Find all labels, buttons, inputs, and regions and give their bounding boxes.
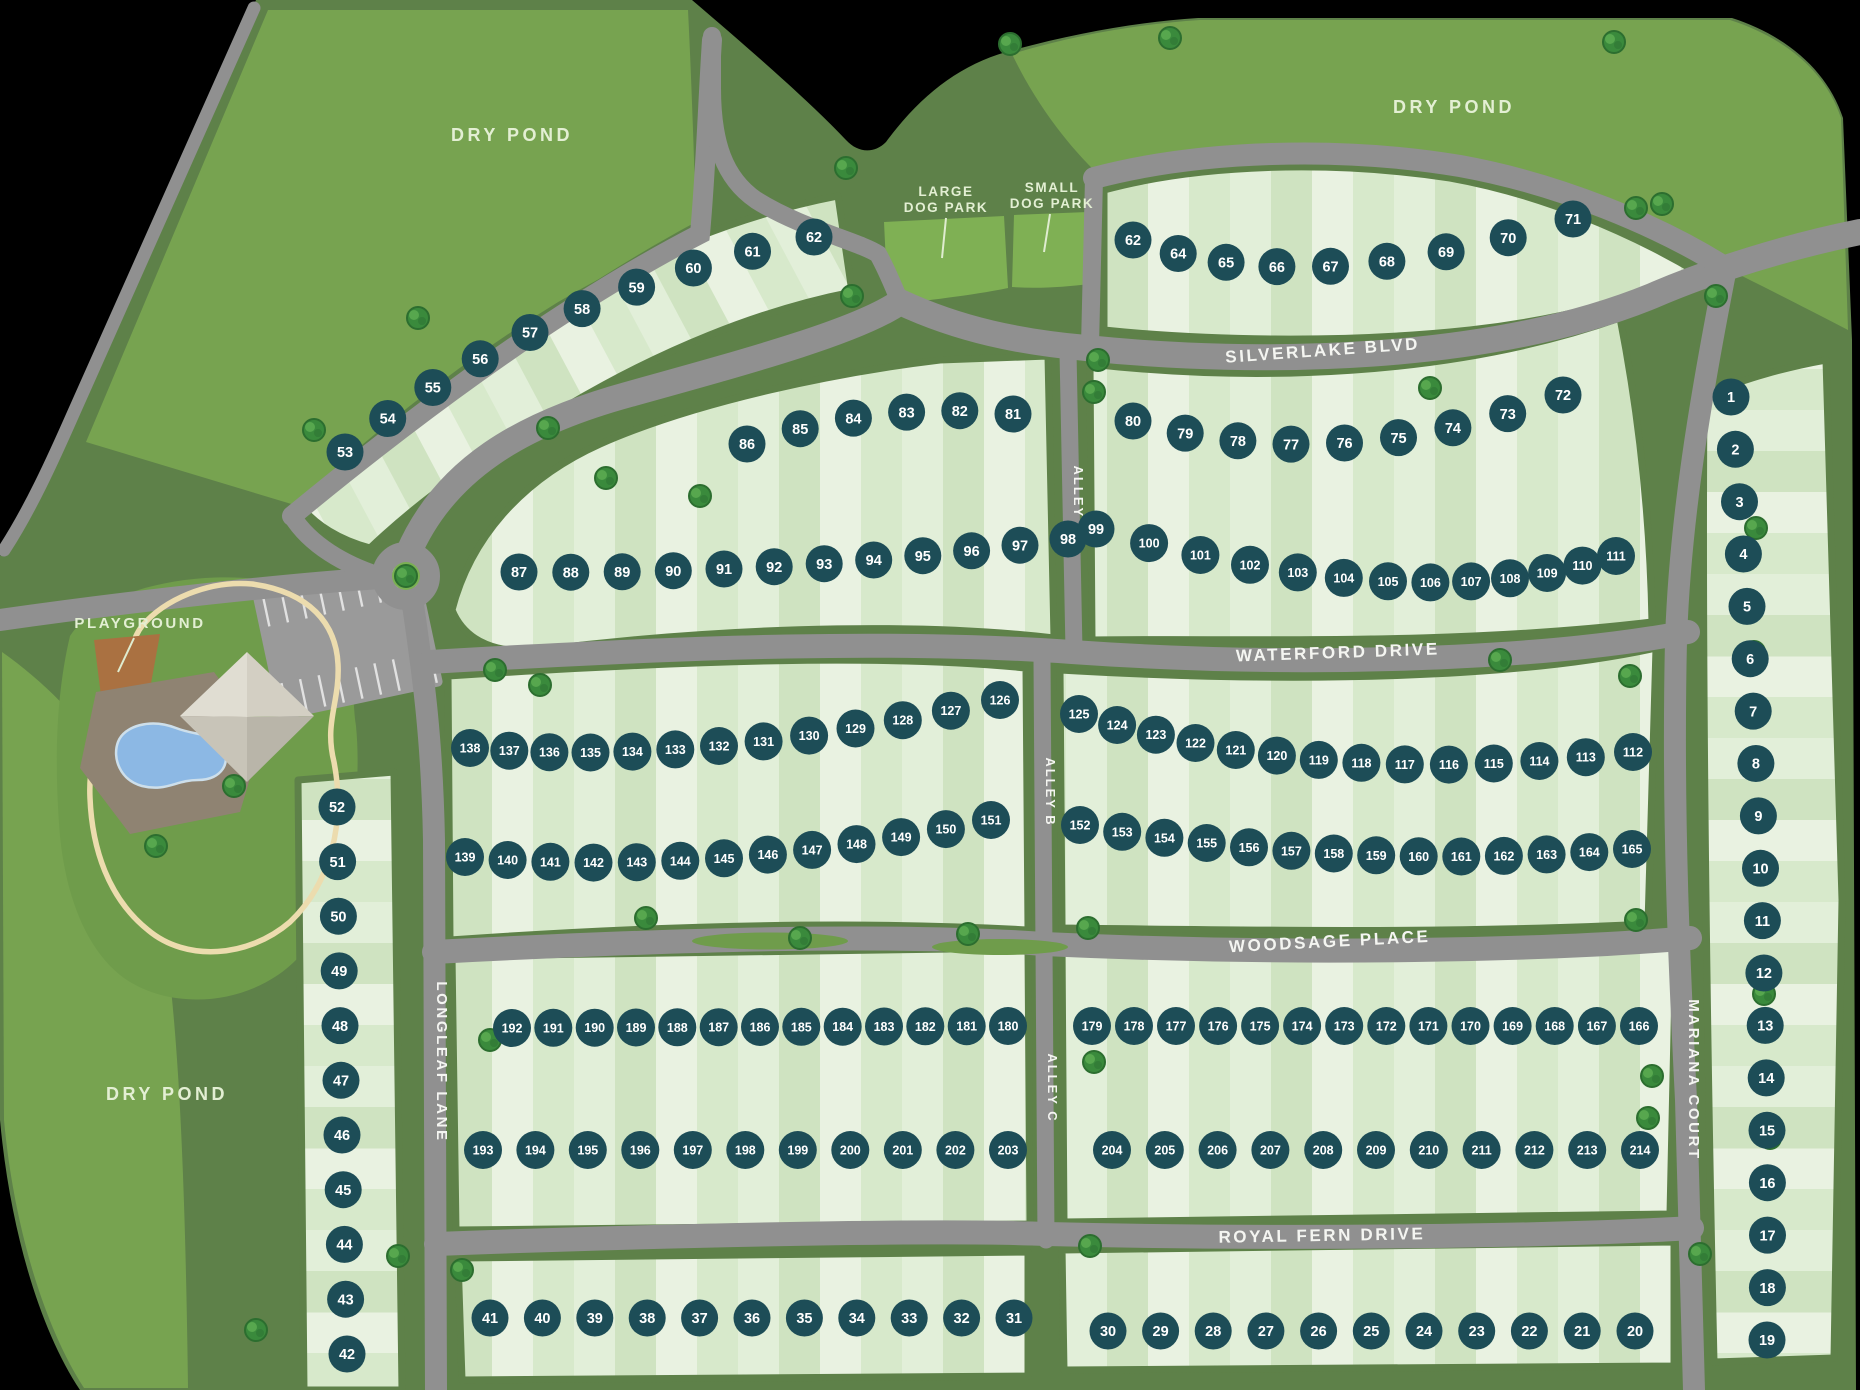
- lot-marker[interactable]: 20: [1617, 1313, 1654, 1350]
- lot-marker[interactable]: 67: [1312, 248, 1349, 285]
- lot-marker[interactable]: 111: [1597, 537, 1635, 575]
- lot-number-label: 178: [1124, 1020, 1145, 1034]
- lot-number-label: 116: [1439, 758, 1459, 772]
- lot-marker[interactable]: 11: [1744, 902, 1781, 939]
- lot-marker[interactable]: 8: [1737, 745, 1774, 782]
- lot-marker[interactable]: 114: [1520, 742, 1558, 780]
- lot-number-label: 55: [425, 381, 441, 397]
- lot-marker[interactable]: 37: [681, 1300, 718, 1337]
- lot-marker[interactable]: 39: [576, 1300, 613, 1337]
- lot-marker[interactable]: 200: [831, 1131, 869, 1169]
- lot-number-label: 167: [1586, 1020, 1607, 1034]
- lot-marker[interactable]: 88: [552, 554, 589, 591]
- lot-marker[interactable]: 151: [972, 801, 1010, 839]
- lot-marker[interactable]: 165: [1613, 830, 1651, 868]
- lot-number-label: 110: [1572, 559, 1592, 573]
- lot-number-label: 102: [1240, 558, 1261, 572]
- lot-number-label: 137: [499, 744, 520, 758]
- lot-marker[interactable]: 178: [1115, 1007, 1153, 1045]
- lot-marker[interactable]: 173: [1325, 1007, 1363, 1045]
- tree-icon: [689, 485, 711, 507]
- lot-marker[interactable]: 187: [700, 1008, 738, 1046]
- lot-marker[interactable]: 160: [1400, 837, 1438, 875]
- tree-icon: [1619, 665, 1641, 687]
- lot-marker[interactable]: 196: [621, 1131, 659, 1169]
- lot-marker[interactable]: 24: [1406, 1313, 1443, 1350]
- lot-marker[interactable]: 127: [932, 692, 970, 730]
- tree-icon: [1087, 349, 1109, 371]
- lot-marker[interactable]: 7: [1735, 693, 1772, 730]
- lot-marker[interactable]: 35: [786, 1300, 823, 1337]
- lot-marker[interactable]: 52: [319, 789, 356, 826]
- lot-number-label: 120: [1266, 749, 1287, 763]
- lot-marker[interactable]: 142: [575, 844, 613, 882]
- lot-marker[interactable]: 205: [1146, 1131, 1184, 1169]
- lot-marker[interactable]: 73: [1489, 395, 1526, 432]
- tree-icon: [245, 1319, 267, 1341]
- lot-number-label: 27: [1258, 1324, 1274, 1340]
- tree-icon: [223, 775, 245, 797]
- lot-number-label: 97: [1012, 538, 1028, 554]
- lot-marker[interactable]: 172: [1367, 1007, 1405, 1045]
- lot-marker[interactable]: 176: [1199, 1007, 1237, 1045]
- lot-marker[interactable]: 15: [1749, 1112, 1786, 1149]
- lot-marker[interactable]: 192: [493, 1009, 531, 1047]
- lot-marker[interactable]: 157: [1272, 832, 1310, 870]
- lot-marker[interactable]: 62: [1115, 222, 1152, 259]
- lot-number-label: 175: [1250, 1020, 1271, 1034]
- lot-number-label: 150: [935, 823, 956, 837]
- lot-number-label: 186: [750, 1021, 771, 1035]
- lot-marker[interactable]: 42: [329, 1336, 366, 1373]
- lot-marker[interactable]: 60: [675, 250, 712, 287]
- lot-marker[interactable]: 87: [501, 554, 538, 591]
- lot-number-label: 50: [330, 909, 346, 925]
- lot-marker[interactable]: 148: [838, 825, 876, 863]
- lot-marker[interactable]: 141: [531, 843, 569, 881]
- lot-marker[interactable]: 90: [655, 552, 692, 589]
- lot-marker[interactable]: 207: [1251, 1131, 1289, 1169]
- lot-marker[interactable]: 72: [1545, 377, 1582, 414]
- lot-marker[interactable]: 146: [749, 836, 787, 874]
- lot-marker[interactable]: 30: [1090, 1313, 1127, 1350]
- lot-marker[interactable]: 48: [322, 1007, 359, 1044]
- lot-marker[interactable]: 185: [782, 1008, 820, 1046]
- lot-number-label: 205: [1154, 1144, 1175, 1158]
- lot-marker[interactable]: 45: [325, 1171, 362, 1208]
- lot-marker[interactable]: 104: [1325, 559, 1363, 597]
- lot-marker[interactable]: 120: [1258, 737, 1296, 775]
- lot-marker[interactable]: 117: [1386, 745, 1424, 783]
- lot-number-label: 4: [1739, 547, 1747, 563]
- lot-number-label: 207: [1260, 1144, 1281, 1158]
- lot-number-label: 159: [1366, 849, 1387, 863]
- lot-number-label: 9: [1754, 809, 1762, 825]
- lot-marker[interactable]: 1: [1713, 379, 1750, 416]
- lot-marker[interactable]: 214: [1621, 1131, 1659, 1169]
- lot-marker[interactable]: 158: [1315, 835, 1353, 873]
- lot-marker[interactable]: 57: [512, 314, 549, 351]
- lot-marker[interactable]: 55: [414, 369, 451, 406]
- lot-marker[interactable]: 13: [1747, 1007, 1784, 1044]
- lot-marker[interactable]: 147: [793, 831, 831, 869]
- lot-marker[interactable]: 153: [1103, 813, 1141, 851]
- lot-marker[interactable]: 107: [1452, 562, 1490, 600]
- lot-marker[interactable]: 25: [1353, 1313, 1390, 1350]
- lot-marker[interactable]: 171: [1409, 1007, 1447, 1045]
- lot-number-label: 197: [682, 1144, 703, 1158]
- lot-marker[interactable]: 43: [327, 1281, 364, 1318]
- lot-marker[interactable]: 130: [790, 717, 828, 755]
- lot-marker[interactable]: 23: [1458, 1313, 1495, 1350]
- lot-marker[interactable]: 69: [1428, 233, 1465, 270]
- lot-marker[interactable]: 27: [1247, 1313, 1284, 1350]
- lot-marker[interactable]: 40: [524, 1300, 561, 1337]
- lot-marker[interactable]: 129: [837, 710, 875, 748]
- lot-marker[interactable]: 38: [629, 1300, 666, 1337]
- lot-marker[interactable]: 156: [1230, 828, 1268, 866]
- lot-number-label: 44: [336, 1238, 352, 1254]
- lot-number-label: 187: [708, 1021, 729, 1035]
- lot-number-label: 32: [954, 1311, 970, 1327]
- lot-marker[interactable]: 61: [734, 233, 771, 270]
- lot-marker[interactable]: 118: [1342, 744, 1380, 782]
- lot-marker[interactable]: 46: [324, 1117, 361, 1154]
- lot-number-label: 37: [692, 1311, 708, 1327]
- lot-marker[interactable]: 164: [1570, 833, 1608, 871]
- lot-marker[interactable]: 6: [1732, 640, 1769, 677]
- lot-marker[interactable]: 169: [1494, 1007, 1532, 1045]
- tree-icon: [1159, 27, 1181, 49]
- lot-marker[interactable]: 29: [1142, 1313, 1179, 1350]
- lot-marker[interactable]: 193: [464, 1131, 502, 1169]
- lot-marker[interactable]: 9: [1740, 797, 1777, 834]
- lot-marker[interactable]: 183: [865, 1008, 903, 1046]
- lot-marker[interactable]: 132: [700, 727, 738, 765]
- lot-marker[interactable]: 143: [618, 843, 656, 881]
- lot-marker[interactable]: 212: [1515, 1131, 1553, 1169]
- lot-number-label: 38: [639, 1311, 655, 1327]
- lot-marker[interactable]: 211: [1463, 1131, 1501, 1169]
- lot-marker[interactable]: 4: [1725, 536, 1762, 573]
- lot-number-label: 149: [891, 831, 912, 845]
- median-island: [692, 933, 848, 950]
- lot-marker[interactable]: 182: [906, 1007, 944, 1045]
- tree-icon: [635, 907, 657, 929]
- lot-number-label: 126: [990, 694, 1011, 708]
- lot-marker[interactable]: 144: [661, 842, 699, 880]
- lot-marker[interactable]: 51: [319, 843, 356, 880]
- lot-marker[interactable]: 83: [888, 394, 925, 431]
- lot-marker[interactable]: 186: [741, 1008, 779, 1046]
- lot-marker[interactable]: 145: [705, 839, 743, 877]
- lot-number-label: 156: [1239, 841, 1260, 855]
- lot-marker[interactable]: 16: [1749, 1164, 1786, 1201]
- lot-number-label: 16: [1759, 1176, 1775, 1192]
- lot-marker[interactable]: 126: [981, 681, 1019, 719]
- lot-number-label: 190: [584, 1021, 605, 1035]
- lot-marker[interactable]: 106: [1411, 563, 1449, 601]
- lot-marker[interactable]: 56: [462, 340, 499, 377]
- lot-marker[interactable]: 44: [326, 1226, 363, 1263]
- lot-number-label: 70: [1500, 231, 1516, 247]
- lot-marker[interactable]: 170: [1452, 1007, 1490, 1045]
- lot-marker[interactable]: 81: [995, 396, 1032, 433]
- lot-marker[interactable]: 199: [779, 1131, 817, 1169]
- lot-marker[interactable]: 31: [996, 1300, 1033, 1337]
- lot-marker[interactable]: 189: [617, 1009, 655, 1047]
- lot-marker[interactable]: 19: [1749, 1322, 1786, 1359]
- lot-marker[interactable]: 66: [1258, 248, 1295, 285]
- lot-marker[interactable]: 99: [1078, 511, 1115, 548]
- lot-number-label: 200: [840, 1144, 861, 1158]
- lot-marker[interactable]: 184: [824, 1008, 862, 1046]
- lot-number-label: 170: [1460, 1020, 1481, 1034]
- lot-marker[interactable]: 123: [1137, 716, 1175, 754]
- lot-marker[interactable]: 70: [1490, 219, 1527, 256]
- tree-icon: [1603, 31, 1625, 53]
- lot-marker[interactable]: 91: [706, 551, 743, 588]
- lot-marker[interactable]: 174: [1283, 1007, 1321, 1045]
- lot-marker[interactable]: 10: [1742, 850, 1779, 887]
- lot-marker[interactable]: 140: [489, 841, 527, 879]
- lot-marker[interactable]: 94: [855, 542, 892, 579]
- lot-marker[interactable]: 68: [1368, 243, 1405, 280]
- lot-marker[interactable]: 110: [1563, 547, 1601, 585]
- lot-marker[interactable]: 201: [884, 1131, 922, 1169]
- royal-fern-drive-label: ROYAL FERN DRIVE: [1218, 1224, 1425, 1247]
- tree-icon: [537, 417, 559, 439]
- lot-block: [452, 948, 1030, 1230]
- lot-number-label: 78: [1230, 434, 1246, 450]
- lot-marker[interactable]: 50: [320, 898, 357, 935]
- lot-marker[interactable]: 208: [1304, 1131, 1342, 1169]
- lot-marker[interactable]: 32: [943, 1300, 980, 1337]
- lot-marker[interactable]: 177: [1157, 1007, 1195, 1045]
- lot-marker[interactable]: 194: [516, 1131, 554, 1169]
- tree-icon: [1077, 917, 1099, 939]
- lot-marker[interactable]: 125: [1060, 695, 1098, 733]
- lot-marker[interactable]: 75: [1380, 419, 1417, 456]
- lot-marker[interactable]: 181: [948, 1007, 986, 1045]
- lot-marker[interactable]: 197: [674, 1131, 712, 1169]
- lot-marker[interactable]: 113: [1567, 738, 1605, 776]
- lot-marker[interactable]: 77: [1273, 426, 1310, 463]
- lot-marker[interactable]: 58: [564, 290, 601, 327]
- lot-number-label: 7: [1749, 704, 1757, 720]
- mariana-court-label: MARIANA COURT: [1685, 999, 1702, 1161]
- lot-marker[interactable]: 162: [1485, 837, 1523, 875]
- lot-number-label: 54: [380, 412, 396, 428]
- lot-marker[interactable]: 54: [369, 400, 406, 437]
- lot-marker[interactable]: 103: [1279, 553, 1317, 591]
- lot-number-label: 134: [622, 745, 643, 759]
- lot-number-label: 93: [816, 557, 832, 573]
- lot-marker[interactable]: 97: [1002, 527, 1039, 564]
- lot-marker[interactable]: 202: [936, 1131, 974, 1169]
- lot-marker[interactable]: 108: [1491, 559, 1529, 597]
- lot-marker[interactable]: 89: [604, 553, 641, 590]
- lot-number-label: 130: [799, 729, 820, 743]
- lot-marker[interactable]: 22: [1511, 1313, 1548, 1350]
- lot-marker[interactable]: 161: [1442, 838, 1480, 876]
- lot-marker[interactable]: 206: [1199, 1131, 1237, 1169]
- lot-marker[interactable]: 84: [835, 400, 872, 437]
- lot-marker[interactable]: 101: [1181, 536, 1219, 574]
- lot-marker[interactable]: 204: [1093, 1131, 1131, 1169]
- lot-number-label: 142: [583, 856, 604, 870]
- lot-marker[interactable]: 100: [1130, 524, 1168, 562]
- lot-marker[interactable]: 119: [1300, 741, 1338, 779]
- lot-marker[interactable]: 168: [1536, 1007, 1574, 1045]
- lot-number-label: 179: [1082, 1020, 1103, 1034]
- lot-number-label: 84: [845, 411, 861, 427]
- lot-number-label: 64: [1170, 247, 1186, 263]
- lot-marker[interactable]: 36: [734, 1300, 771, 1337]
- lot-marker[interactable]: 62: [796, 219, 833, 256]
- lot-marker[interactable]: 190: [576, 1009, 614, 1047]
- lot-marker[interactable]: 198: [726, 1131, 764, 1169]
- lot-marker[interactable]: 85: [782, 410, 819, 447]
- lot-number-label: 168: [1544, 1020, 1565, 1034]
- lot-number-label: 155: [1196, 837, 1217, 851]
- lot-marker[interactable]: 33: [891, 1300, 928, 1337]
- lot-marker[interactable]: 121: [1217, 731, 1255, 769]
- lot-marker[interactable]: 109: [1528, 554, 1566, 592]
- lot-number-label: 118: [1351, 756, 1371, 770]
- lot-marker[interactable]: 12: [1745, 955, 1782, 992]
- lot-marker[interactable]: 34: [838, 1300, 875, 1337]
- lot-marker[interactable]: 116: [1430, 746, 1468, 784]
- small-dog-park-area: [1012, 212, 1090, 288]
- lot-marker[interactable]: 180: [989, 1007, 1027, 1045]
- lot-marker[interactable]: 2: [1717, 431, 1754, 468]
- lot-marker[interactable]: 49: [321, 952, 358, 989]
- tree-icon: [1079, 1235, 1101, 1257]
- lot-marker[interactable]: 163: [1528, 835, 1566, 873]
- lot-marker[interactable]: 195: [569, 1131, 607, 1169]
- lot-marker[interactable]: 5: [1729, 588, 1766, 625]
- lot-marker[interactable]: 167: [1578, 1007, 1616, 1045]
- lot-marker[interactable]: 82: [941, 392, 978, 429]
- lot-marker[interactable]: 131: [745, 722, 783, 760]
- small-dog-park-label: SMALL: [1025, 180, 1080, 195]
- tree-icon: [595, 467, 617, 489]
- lot-marker[interactable]: 105: [1369, 562, 1407, 600]
- tree-icon: [1637, 1107, 1659, 1129]
- playground-label: PLAYGROUND: [74, 615, 205, 632]
- lot-marker[interactable]: 80: [1115, 403, 1152, 440]
- lot-marker[interactable]: 102: [1231, 546, 1269, 584]
- lot-marker[interactable]: 64: [1160, 235, 1197, 272]
- lot-number-label: 198: [735, 1144, 756, 1158]
- lot-marker[interactable]: 93: [806, 545, 843, 582]
- lot-marker[interactable]: 139: [446, 838, 484, 876]
- alley-b-label: ALLEY B: [1043, 757, 1058, 826]
- lot-marker[interactable]: 136: [530, 733, 568, 771]
- lot-number-label: 3: [1735, 495, 1743, 511]
- lot-number-label: 45: [335, 1183, 351, 1199]
- lot-marker[interactable]: 21: [1564, 1313, 1601, 1350]
- lot-number-label: 77: [1283, 437, 1299, 453]
- lot-number-label: 158: [1323, 847, 1344, 861]
- lot-marker[interactable]: 78: [1219, 422, 1256, 459]
- lot-marker[interactable]: 155: [1188, 824, 1226, 862]
- lot-number-label: 47: [333, 1074, 349, 1090]
- lot-marker[interactable]: 96: [953, 532, 990, 569]
- lot-marker[interactable]: 18: [1749, 1269, 1786, 1306]
- tree-icon: [841, 285, 863, 307]
- lot-marker[interactable]: 134: [613, 733, 651, 771]
- lot-number-label: 189: [626, 1021, 647, 1035]
- lot-marker[interactable]: 133: [656, 730, 694, 768]
- lot-marker[interactable]: 175: [1241, 1007, 1279, 1045]
- lot-number-label: 56: [472, 352, 488, 368]
- lot-marker[interactable]: 179: [1073, 1007, 1111, 1045]
- lot-marker[interactable]: 14: [1748, 1059, 1785, 1096]
- lot-number-label: 74: [1445, 421, 1461, 437]
- lot-marker[interactable]: 17: [1749, 1217, 1786, 1254]
- lot-marker[interactable]: 154: [1145, 819, 1183, 857]
- lot-number-label: 51: [330, 855, 346, 871]
- lot-marker[interactable]: 152: [1061, 806, 1099, 844]
- lot-marker[interactable]: 150: [927, 810, 965, 848]
- lot-marker[interactable]: 92: [756, 548, 793, 585]
- lot-marker[interactable]: 203: [989, 1131, 1027, 1169]
- lot-marker[interactable]: 209: [1357, 1131, 1395, 1169]
- lot-marker[interactable]: 135: [572, 734, 610, 772]
- lot-marker[interactable]: 74: [1434, 409, 1471, 446]
- lot-marker[interactable]: 128: [884, 701, 922, 739]
- lot-marker[interactable]: 213: [1568, 1131, 1606, 1169]
- lot-marker[interactable]: 76: [1326, 425, 1363, 462]
- lot-marker[interactable]: 115: [1475, 745, 1513, 783]
- lot-marker[interactable]: 59: [618, 269, 655, 306]
- lot-number-label: 83: [899, 405, 915, 421]
- lot-marker[interactable]: 149: [882, 818, 920, 856]
- lot-number-label: 209: [1366, 1144, 1387, 1158]
- lot-marker[interactable]: 159: [1357, 836, 1395, 874]
- lot-marker[interactable]: 26: [1300, 1313, 1337, 1350]
- lot-number-label: 117: [1395, 758, 1415, 772]
- lot-marker[interactable]: 28: [1195, 1313, 1232, 1350]
- lot-marker[interactable]: 124: [1098, 706, 1136, 744]
- lot-marker[interactable]: 79: [1167, 415, 1204, 452]
- lot-number-label: 89: [614, 565, 630, 581]
- lot-number-label: 166: [1629, 1020, 1650, 1034]
- lot-marker[interactable]: 65: [1208, 244, 1245, 281]
- lot-marker[interactable]: 41: [472, 1300, 509, 1337]
- lot-marker[interactable]: 137: [490, 732, 528, 770]
- lot-marker[interactable]: 122: [1177, 724, 1215, 762]
- lot-marker[interactable]: 47: [323, 1062, 360, 1099]
- lot-number-label: 145: [714, 852, 735, 866]
- lot-marker[interactable]: 166: [1620, 1007, 1658, 1045]
- lot-number-label: 76: [1336, 436, 1352, 452]
- lot-marker[interactable]: 138: [451, 729, 489, 767]
- lot-marker[interactable]: 112: [1614, 733, 1652, 771]
- lot-marker[interactable]: 191: [534, 1009, 572, 1047]
- lot-marker[interactable]: 86: [729, 426, 766, 463]
- lot-marker[interactable]: 95: [904, 537, 941, 574]
- lot-marker[interactable]: 188: [658, 1008, 696, 1046]
- lot-marker[interactable]: 3: [1721, 483, 1758, 520]
- lot-marker[interactable]: 71: [1555, 201, 1592, 238]
- lot-marker[interactable]: 210: [1410, 1131, 1448, 1169]
- lot-number-label: 106: [1420, 576, 1441, 590]
- lot-number-label: 143: [626, 856, 647, 870]
- lot-marker[interactable]: 53: [327, 434, 364, 471]
